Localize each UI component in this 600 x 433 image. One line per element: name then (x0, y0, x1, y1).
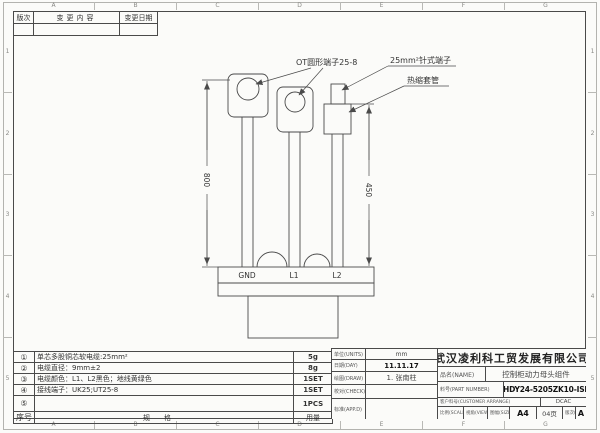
bom-no: ② (14, 363, 35, 374)
bom-spec: 单芯多股铜芯软电缆:25mm² (35, 352, 294, 363)
zone-letter: F (423, 421, 505, 429)
zone-number: 1 (588, 11, 597, 93)
zone-letter: C (177, 2, 259, 10)
bom-footer-qty: 用量 (294, 412, 333, 424)
zone-letter: B (95, 2, 177, 10)
bom-qty: 8g (294, 363, 333, 374)
title-block: 单位(UNITS) mm 日期(DAY) 11.11.17 绘图(DRAW) 1… (331, 348, 586, 419)
l2-label: L2 (333, 271, 342, 280)
part-number-label: 料号(PART NUMBER) (437, 381, 503, 397)
bom-row: ② 电缆直径：9mm±2 8g (14, 363, 333, 374)
bom-table: ① 单芯多股铜芯软电缆:25mm² 5g ② 电缆直径：9mm±2 8g ③ 电… (13, 351, 333, 424)
revision-col-date: 变更日期 (120, 12, 158, 24)
zone-number: 4 (3, 256, 12, 338)
assembly-drawing: OT圆形端子25-8 25mm²针式端子 热缩套管 800 450 GND L1… (190, 48, 470, 345)
dimension-450-label: 450 (364, 183, 373, 198)
check-label: 校对(CHECK) (331, 384, 365, 398)
bom-no: ④ (14, 385, 35, 396)
bom-spec: 电缆直径：9mm±2 (35, 363, 294, 374)
scale-label: 比例(SCALE) (437, 406, 463, 419)
zone-numbers-left: 12345 (3, 11, 12, 419)
bom-spec: 接线端子：UK25;UT25-8 (35, 385, 294, 396)
draw-value: 1. 张南柱 (365, 371, 437, 384)
bom-no: ① (14, 352, 35, 363)
revision-table: 版次 变更内容 变更日期 (13, 11, 158, 36)
zone-letter: D (259, 2, 341, 10)
zone-number: 4 (588, 256, 597, 338)
zone-number: 3 (3, 175, 12, 257)
rev-label: 版次(REV) (562, 406, 575, 419)
zone-number: 1 (3, 11, 12, 93)
revision-cell (14, 24, 34, 36)
wire-arcs (257, 252, 330, 267)
zone-letter: G (505, 2, 586, 10)
pin-terminal-annotation: 25mm²针式端子 (390, 55, 451, 65)
size-label: 图幅(SIZE) (487, 406, 509, 419)
bom-qty: 5g (294, 352, 333, 363)
bom-row: ③ 电缆颜色：L1、L2黑色；地线黄绿色 1SET (14, 374, 333, 385)
zone-letter: G (505, 421, 586, 429)
gnd-terminal (228, 74, 268, 267)
units-label: 单位(UNITS) (331, 348, 365, 359)
view-label: 视角(VIEW) (463, 406, 487, 419)
bom-no: ⑤ (14, 396, 35, 412)
draw-label: 绘图(DRAW) (331, 371, 365, 384)
drawing-sheet: ABCDEFG ABCDEFG 12345 12345 版次 变更内容 变更日期 (0, 0, 600, 433)
page-value: 04页 (536, 406, 562, 419)
rev-value: A (575, 406, 586, 419)
l2-terminal (324, 84, 351, 267)
revision-header-row: 版次 变更内容 变更日期 (14, 12, 158, 24)
bom-footer-row: 序号 规格 用量 (14, 412, 333, 424)
bom-row: ④ 接线端子：UK25;UT25-8 1SET (14, 385, 333, 396)
date-label: 日期(DAY) (331, 359, 365, 371)
company-name: 武汉凌利科工贸发展有限公司 (437, 348, 586, 366)
revision-col-rev: 版次 (14, 12, 34, 24)
bom-qty: 1SET (294, 385, 333, 396)
date-value: 11.11.17 (365, 359, 437, 371)
approve-label: 标准(APP.D) (331, 398, 365, 419)
check-value (365, 384, 437, 398)
dimension-800-label: 800 (202, 173, 211, 188)
l1-label: L1 (290, 271, 299, 280)
bom-spec: 电缆颜色：L1、L2黑色；地线黄绿色 (35, 374, 294, 385)
units-value: mm (365, 348, 437, 359)
approve-value (365, 398, 437, 419)
zone-letter: E (341, 2, 423, 10)
bom-no: ③ (14, 374, 35, 385)
revision-cell (34, 24, 120, 36)
bom-qty: 1PCS (294, 396, 333, 412)
zone-numbers-right: 12345 (588, 11, 597, 419)
customer-part-label: 客户料号(CUSTOMER ARRANGE) (437, 397, 540, 406)
revision-cell (120, 24, 158, 36)
bom-qty: 1SET (294, 374, 333, 385)
leader-lines (256, 66, 456, 112)
bom-row: ⑤ 1PCS (14, 396, 333, 412)
customer-part-value: DCAC (540, 397, 586, 406)
zone-number: 5 (588, 338, 597, 419)
zone-number: 5 (3, 338, 12, 419)
zone-letter: A (13, 2, 95, 10)
heat-shrink-annotation: 热缩套管 (407, 75, 439, 85)
bom-footer-spec: 规格 (35, 412, 294, 424)
zone-letter: F (423, 2, 505, 10)
gnd-label: GND (238, 271, 255, 280)
bom-row: ① 单芯多股铜芯软电缆:25mm² 5g (14, 352, 333, 363)
l1-terminal (277, 87, 313, 267)
zone-number: 3 (588, 175, 597, 257)
product-name-label: 品名(NAME) (437, 366, 485, 381)
part-number-value: HDY24-5205ZK10-ISI (503, 381, 586, 397)
bom-footer-no: 序号 (14, 412, 35, 424)
revision-col-content: 变更内容 (34, 12, 120, 24)
bom-spec (35, 396, 294, 412)
revision-empty-row (14, 24, 158, 36)
zone-number: 2 (588, 93, 597, 175)
zone-letters-top: ABCDEFG (13, 2, 586, 10)
ot-terminal-annotation: OT圆形端子25-8 (296, 57, 357, 67)
zone-number: 2 (3, 93, 12, 175)
size-value: A4 (509, 406, 536, 419)
zone-letter: E (341, 421, 423, 429)
product-name-value: 控制柜动力母头组件 (485, 366, 586, 381)
